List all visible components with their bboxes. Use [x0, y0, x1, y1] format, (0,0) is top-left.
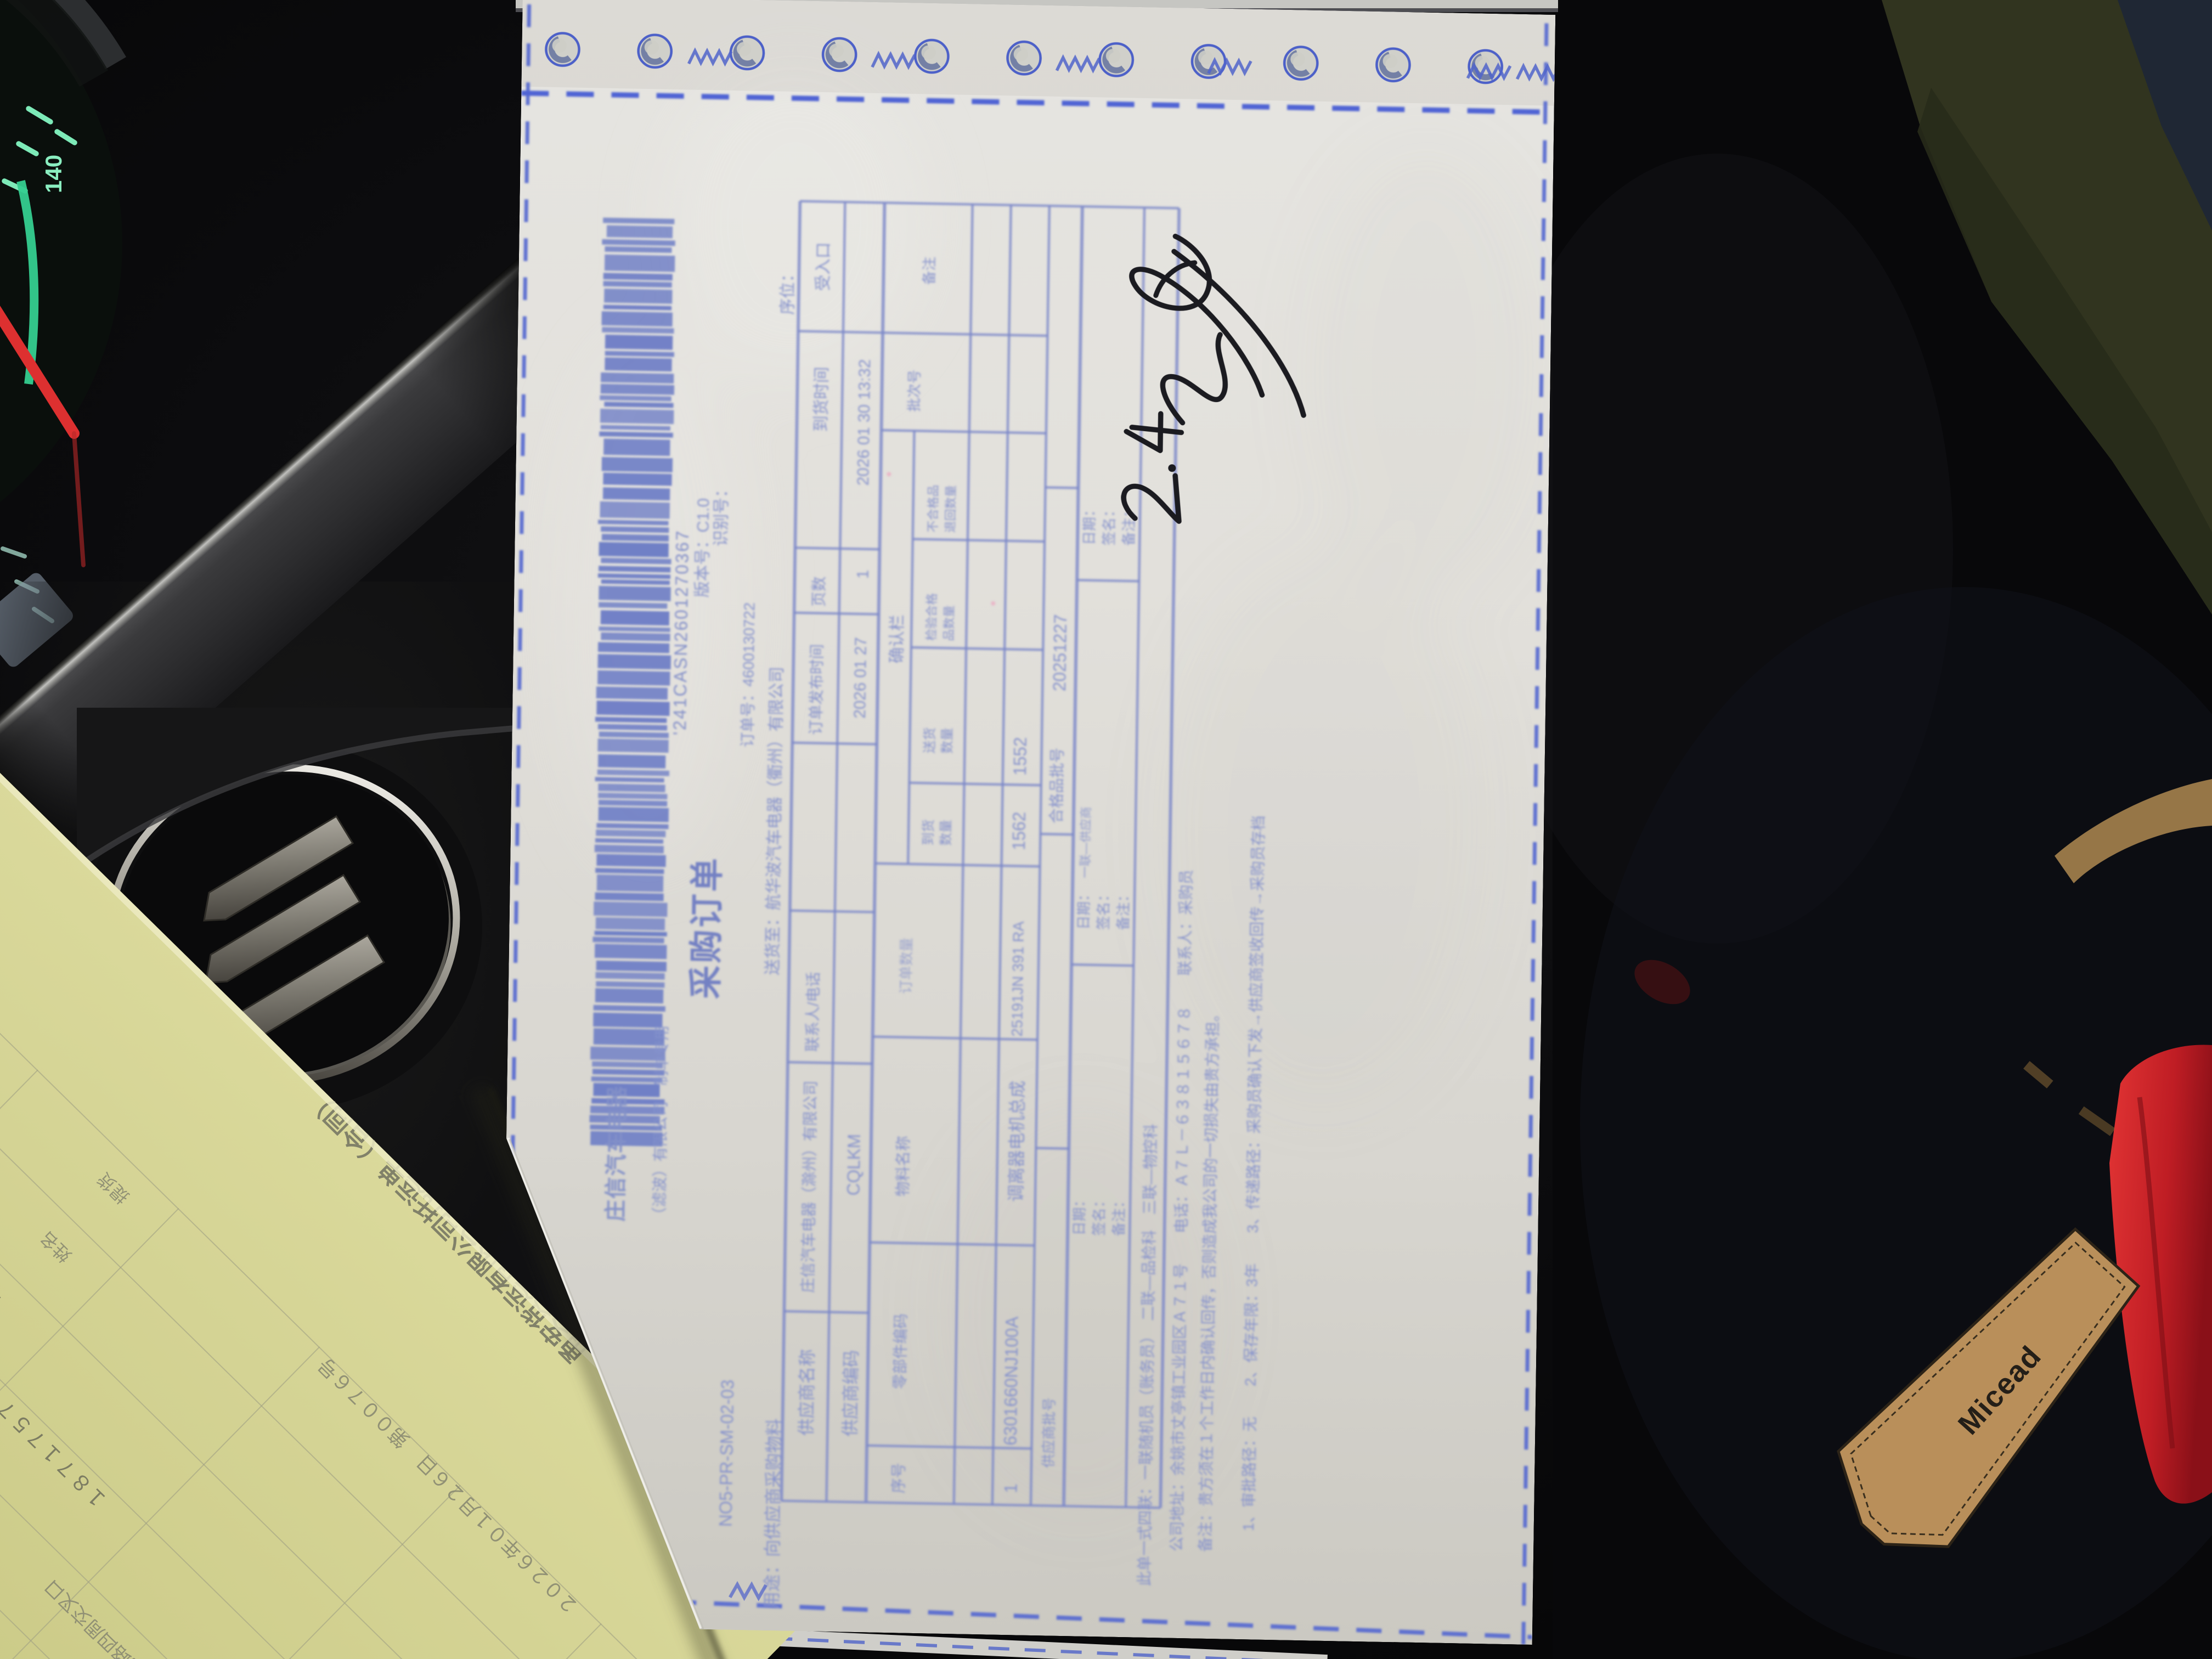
svg-text:一联—供应商: 一联—供应商 [1078, 806, 1093, 878]
svg-text:数量: 数量 [940, 727, 955, 754]
svg-text:庄信汽车电器（滁州）有限公司: 庄信汽车电器（滁州）有限公司 [799, 1080, 820, 1293]
svg-text:备注: 备注 [921, 257, 938, 285]
svg-text:供应商编码: 供应商编码 [840, 1350, 861, 1437]
svg-text:1: 1 [854, 569, 872, 579]
svg-text:'241CASN2601270367: '241CASN2601270367 [670, 529, 693, 735]
svg-text:1562: 1562 [1009, 811, 1029, 850]
svg-text:退回数量: 退回数量 [944, 485, 958, 533]
svg-text:CQLKM: CQLKM [843, 1134, 864, 1196]
svg-text:版本号：C1.0: 版本号：C1.0 [693, 498, 713, 598]
svg-text:送货至：航华波汽车电器（衢州）有限公司: 送货至：航华波汽车电器（衢州）有限公司 [764, 667, 786, 975]
svg-text:确认栏: 确认栏 [888, 614, 907, 663]
svg-text:物料名称: 物料名称 [894, 1136, 912, 1197]
svg-text:数量: 数量 [939, 820, 954, 846]
svg-text:订单数量: 订单数量 [898, 938, 915, 994]
svg-text:6301660NJ100A: 6301660NJ100A [1000, 1316, 1022, 1446]
svg-text:1: 1 [1001, 1483, 1021, 1493]
svg-text:批次号: 批次号 [906, 369, 923, 412]
svg-text:供应商批号: 供应商批号 [1041, 1397, 1058, 1468]
svg-text:日期：: 日期： [1076, 887, 1092, 930]
svg-text:识别号：: 识别号： [712, 481, 731, 546]
svg-text:零部件编码: 零部件编码 [891, 1313, 909, 1390]
svg-text:签名：: 签名： [1091, 1193, 1108, 1236]
svg-text:联系人/电话: 联系人/电话 [804, 972, 822, 1052]
svg-text:2026 01 30 13:32: 2026 01 30 13:32 [854, 359, 874, 486]
svg-text:签名：: 签名： [1096, 888, 1112, 930]
svg-text:页数: 页数 [810, 576, 828, 607]
svg-text:供应商名称: 供应商名称 [796, 1349, 817, 1436]
svg-text:序号: 序号 [890, 1463, 907, 1493]
svg-text:140: 140 [41, 155, 66, 193]
svg-text:不合格品: 不合格品 [926, 484, 940, 532]
svg-text:序位：: 序位： [778, 266, 798, 314]
svg-text:备注：: 备注： [1111, 1194, 1127, 1237]
svg-text:品数量: 品数量 [942, 605, 956, 641]
svg-text:订单号：4600130722: 订单号：4600130722 [739, 602, 758, 748]
svg-text:签名：: 签名： [1101, 503, 1118, 546]
svg-text:1552: 1552 [1010, 737, 1030, 776]
svg-text:订单发布时间: 订单发布时间 [807, 644, 826, 735]
svg-text:20251227: 20251227 [1049, 614, 1070, 691]
svg-text:检验合格: 检验合格 [924, 593, 939, 641]
svg-text:用途：向供应商采购物料: 用途：向供应商采购物料 [761, 1418, 784, 1609]
svg-text:2026 01 27: 2026 01 27 [851, 637, 870, 719]
svg-text:备注：: 备注： [1115, 888, 1132, 930]
svg-text:采购订单: 采购订单 [687, 856, 727, 1000]
svg-text:日期：: 日期： [1072, 1193, 1088, 1236]
svg-text:调离器电机总成: 调离器电机总成 [1006, 1080, 1028, 1202]
svg-text:庄信汽车电器: 庄信汽车电器 [603, 1085, 630, 1222]
svg-text:日期：: 日期： [1082, 503, 1098, 545]
svg-text:合格品批号: 合格品批号 [1048, 747, 1066, 823]
svg-text:送货: 送货 [922, 727, 938, 754]
svg-text:到货: 到货 [921, 819, 936, 845]
svg-text:到货时间: 到货时间 [812, 366, 831, 432]
svg-text:NO5-PR-SM-02-03: NO5-PR-SM-02-03 [715, 1379, 737, 1527]
svg-text:受入口: 受入口 [814, 242, 833, 291]
svg-text:25191JN 391 RA: 25191JN 391 RA [1008, 921, 1027, 1036]
svg-text:（滤波）有限公司 制单专用: （滤波）有限公司 制单专用 [651, 1025, 670, 1223]
